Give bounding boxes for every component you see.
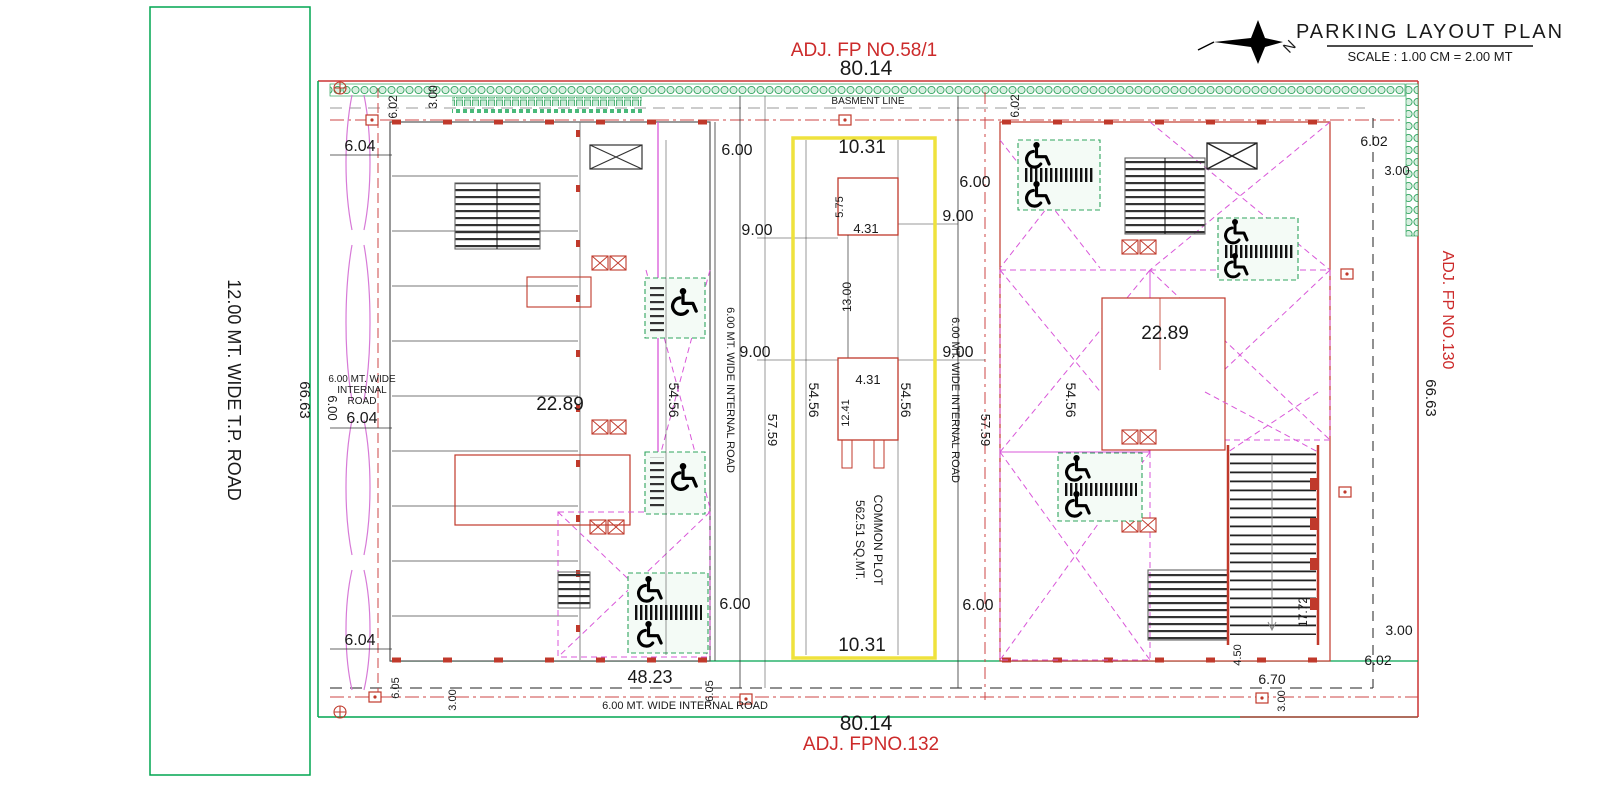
dim-label: 6.04 (344, 632, 375, 649)
dim-plot-height-left: 66.63 (296, 381, 313, 419)
dim-plot-width-bottom: 80.14 (840, 712, 893, 735)
green-parking-row (452, 97, 642, 106)
dim-label: 54.56 (806, 382, 822, 417)
dim-common-width-bottom: 10.31 (838, 635, 886, 656)
dim-left-block: 22.89 (536, 394, 584, 415)
dim-label: 3.00 (1385, 622, 1412, 638)
dim-label: 9.00 (942, 208, 973, 225)
common-plot-label: COMMON PLOT (871, 495, 885, 586)
dim-label: 6.00 (721, 142, 752, 159)
dim-label: 6.70 (1258, 671, 1285, 687)
adjacent-right-label: ADJ. FP NO.130 (1439, 251, 1456, 370)
dim-label: 57.59 (765, 414, 780, 447)
handicap-parking (628, 573, 708, 653)
left-building-block (390, 122, 710, 661)
dim-label: 6.00 (719, 596, 750, 613)
handicap-parking (1058, 453, 1142, 521)
dim-label: 6.05 (704, 680, 716, 701)
tp-road: 12.00 MT. WIDE T.P. ROAD (150, 7, 310, 775)
dim-left-block-width: 48.23 (627, 667, 672, 687)
dim-label: 9.00 (741, 222, 772, 239)
plan-title: PARKING LAYOUT PLAN (1296, 21, 1564, 43)
dim-label: 6.00 (325, 395, 340, 420)
dim-label: 3.00 (426, 85, 440, 109)
staircase (558, 572, 590, 608)
dim-label: 6.02 (1008, 94, 1022, 118)
internal-road-1-label: 6.00 MT. WIDE INTERNAL ROAD (724, 307, 736, 473)
staircase (1148, 570, 1228, 640)
handicap-parking (645, 278, 705, 338)
dim-label: 6.05 (390, 677, 402, 698)
dim-label: 4.31 (855, 372, 880, 387)
tp-road-label: 12.00 MT. WIDE T.P. ROAD (224, 279, 244, 500)
dim-label: 9.00 (739, 344, 770, 361)
dim-label: 4.50 (1232, 644, 1244, 665)
dim-plot-height-right: 66.63 (1422, 379, 1439, 417)
dim-ramp-length: 17.72 (1296, 597, 1310, 627)
dim-label: 4.31 (853, 221, 878, 236)
handicap-parking (645, 452, 705, 514)
dim-label: 3.00 (1384, 163, 1409, 178)
dim-right-block: 22.89 (1141, 323, 1189, 344)
internal-road-label-line1: 6.00 MT. WIDE (328, 374, 396, 385)
dim-plot-width-top: 80.14 (840, 57, 893, 80)
dim-label: 6.02 (386, 95, 400, 119)
dim-label: 6.04 (344, 138, 375, 155)
adjacent-bottom-label: ADJ. FPNO.132 (803, 734, 939, 755)
dim-label: 54.56 (898, 382, 914, 417)
green-strip-right (1406, 84, 1418, 236)
dim-label: 57.59 (978, 414, 993, 447)
dim-label: 5.75 (834, 196, 846, 217)
dim-label: 9.00 (942, 344, 973, 361)
plan-scale: SCALE : 1.00 CM = 2.00 MT (1347, 49, 1512, 64)
bottom-road-label: 6.00 MT. WIDE INTERNAL ROAD (602, 700, 768, 712)
handicap-parking (1218, 218, 1298, 280)
dim-label: 54.56 (1063, 382, 1079, 417)
dim-label: 13.00 (840, 282, 854, 312)
dim-label: 6.02 (1364, 652, 1391, 668)
dim-label: 3.00 (447, 689, 459, 710)
internal-road-2-label: 6.00 MT. WIDE INTERNAL ROAD (949, 317, 961, 483)
dim-common-width-top: 10.31 (838, 137, 886, 158)
dim-label: 3.00 (1276, 690, 1288, 711)
dim-label: 6.04 (346, 410, 377, 427)
dim-label: 12.41 (840, 399, 852, 427)
internal-road-label-line2: INTERNAL (337, 385, 387, 396)
handicap-parking (1018, 140, 1100, 210)
parking-layout-plan: 12.00 MT. WIDE T.P. ROAD BASMENT LINE (0, 0, 1600, 800)
dim-label: 54.56 (666, 382, 682, 417)
internal-road-label-line3: ROAD (348, 396, 377, 407)
basement-line-label: BASMENT LINE (831, 96, 904, 107)
common-plot-area: 562.51 SQ.MT. (853, 500, 867, 580)
dim-label: 6.00 (959, 174, 990, 191)
dim-label: 6.02 (1360, 133, 1387, 149)
dim-label: 6.00 (962, 597, 993, 614)
